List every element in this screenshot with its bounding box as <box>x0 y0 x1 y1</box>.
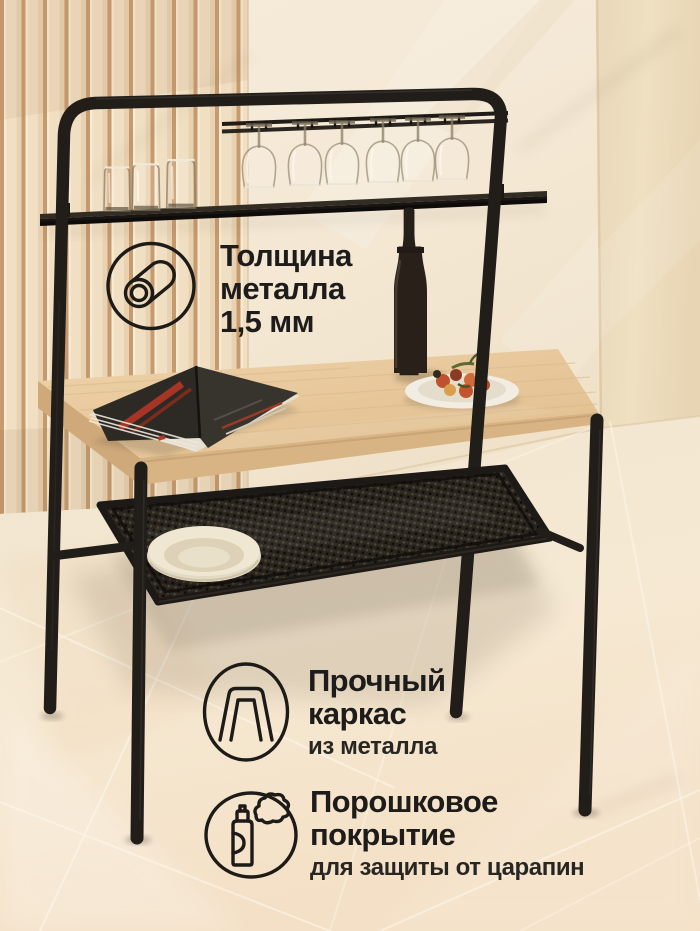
feature-subtitle: для защиты от царапин <box>310 854 584 881</box>
metal-thickness-icon <box>105 241 197 331</box>
feature-title-line: Прочный <box>308 664 445 697</box>
tumbler-glasses <box>104 160 195 211</box>
plate-stack <box>147 526 261 584</box>
feature-subtitle: из металла <box>308 733 445 760</box>
feature-coating: Порошковое покрытие для защиты от царапи… <box>310 785 584 881</box>
feature-title-line: каркас <box>308 697 445 730</box>
feature-title-line: Порошковое <box>310 785 584 818</box>
spray-can-icon <box>204 791 298 879</box>
feature-value: 1,5 мм <box>220 305 352 338</box>
feature-title-line: Толщина <box>220 239 352 272</box>
right-wall <box>597 0 700 428</box>
feature-title-line: покрытие <box>310 818 584 851</box>
feature-thickness: Толщина металла 1,5 мм <box>220 239 352 338</box>
product-image: Толщина металла 1,5 мм Прочный каркас из… <box>0 0 700 931</box>
metal-frame-icon <box>202 662 290 762</box>
feature-frame: Прочный каркас из металла <box>308 664 445 760</box>
feature-title-line: металла <box>220 272 352 305</box>
